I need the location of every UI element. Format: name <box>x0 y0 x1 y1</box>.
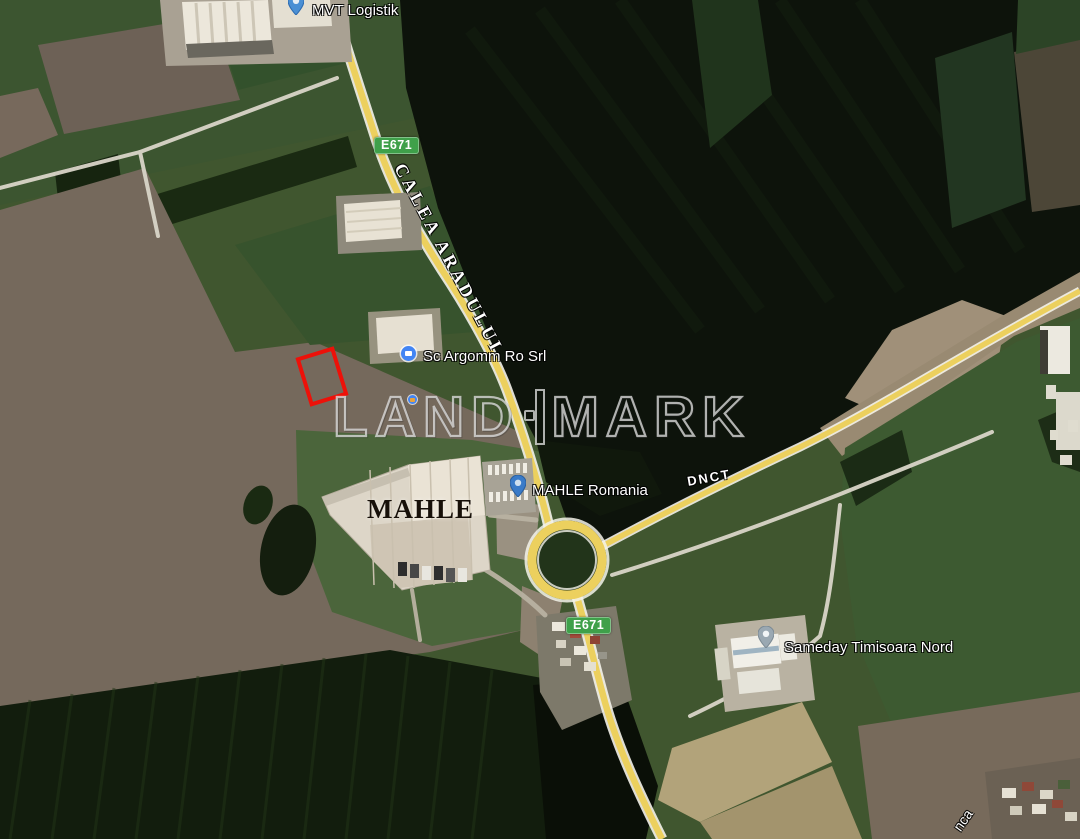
map-pin-icon[interactable] <box>288 0 304 15</box>
farmland-fields <box>0 0 1080 839</box>
small-poi-icon[interactable] <box>408 395 417 404</box>
site-label-mahle: MAHLE <box>367 494 474 525</box>
poi-label-sc-argomm[interactable]: Sc Argomm Ro Srl <box>423 348 546 365</box>
route-badge-e671-lower: E671 <box>566 617 611 634</box>
satellite-imagery <box>0 0 1080 839</box>
poi-label-mahle-romania[interactable]: MAHLE Romania <box>532 482 648 499</box>
poi-label-mvt-logistik[interactable]: MVT Logistik <box>312 2 398 19</box>
map-pin-icon[interactable] <box>510 475 526 497</box>
satellite-map[interactable]: LAND MARK MVT Logistik E671 CALEA ARADUL… <box>0 0 1080 839</box>
map-pin-icon[interactable] <box>758 626 774 648</box>
roundabout <box>526 519 608 601</box>
poi-label-sameday[interactable]: Sameday Timisoara Nord <box>784 639 953 656</box>
route-badge-e671-upper: E671 <box>374 137 419 154</box>
business-poi-icon[interactable] <box>401 346 416 361</box>
